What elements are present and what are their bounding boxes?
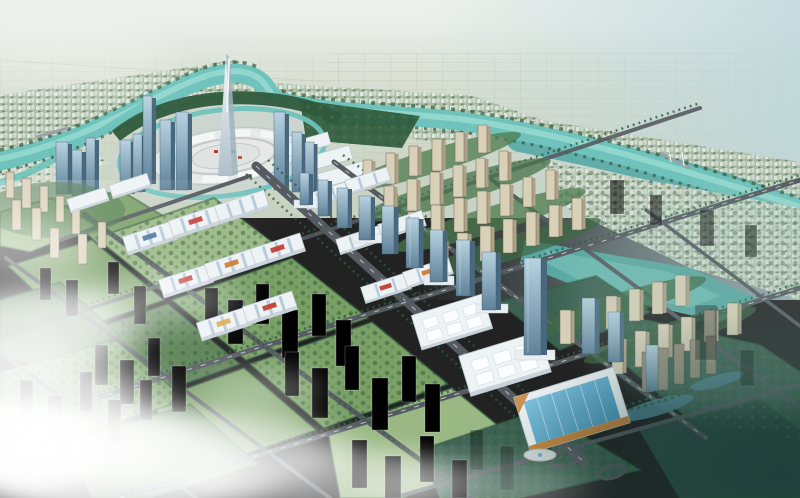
- aerial-city-render: [0, 0, 800, 498]
